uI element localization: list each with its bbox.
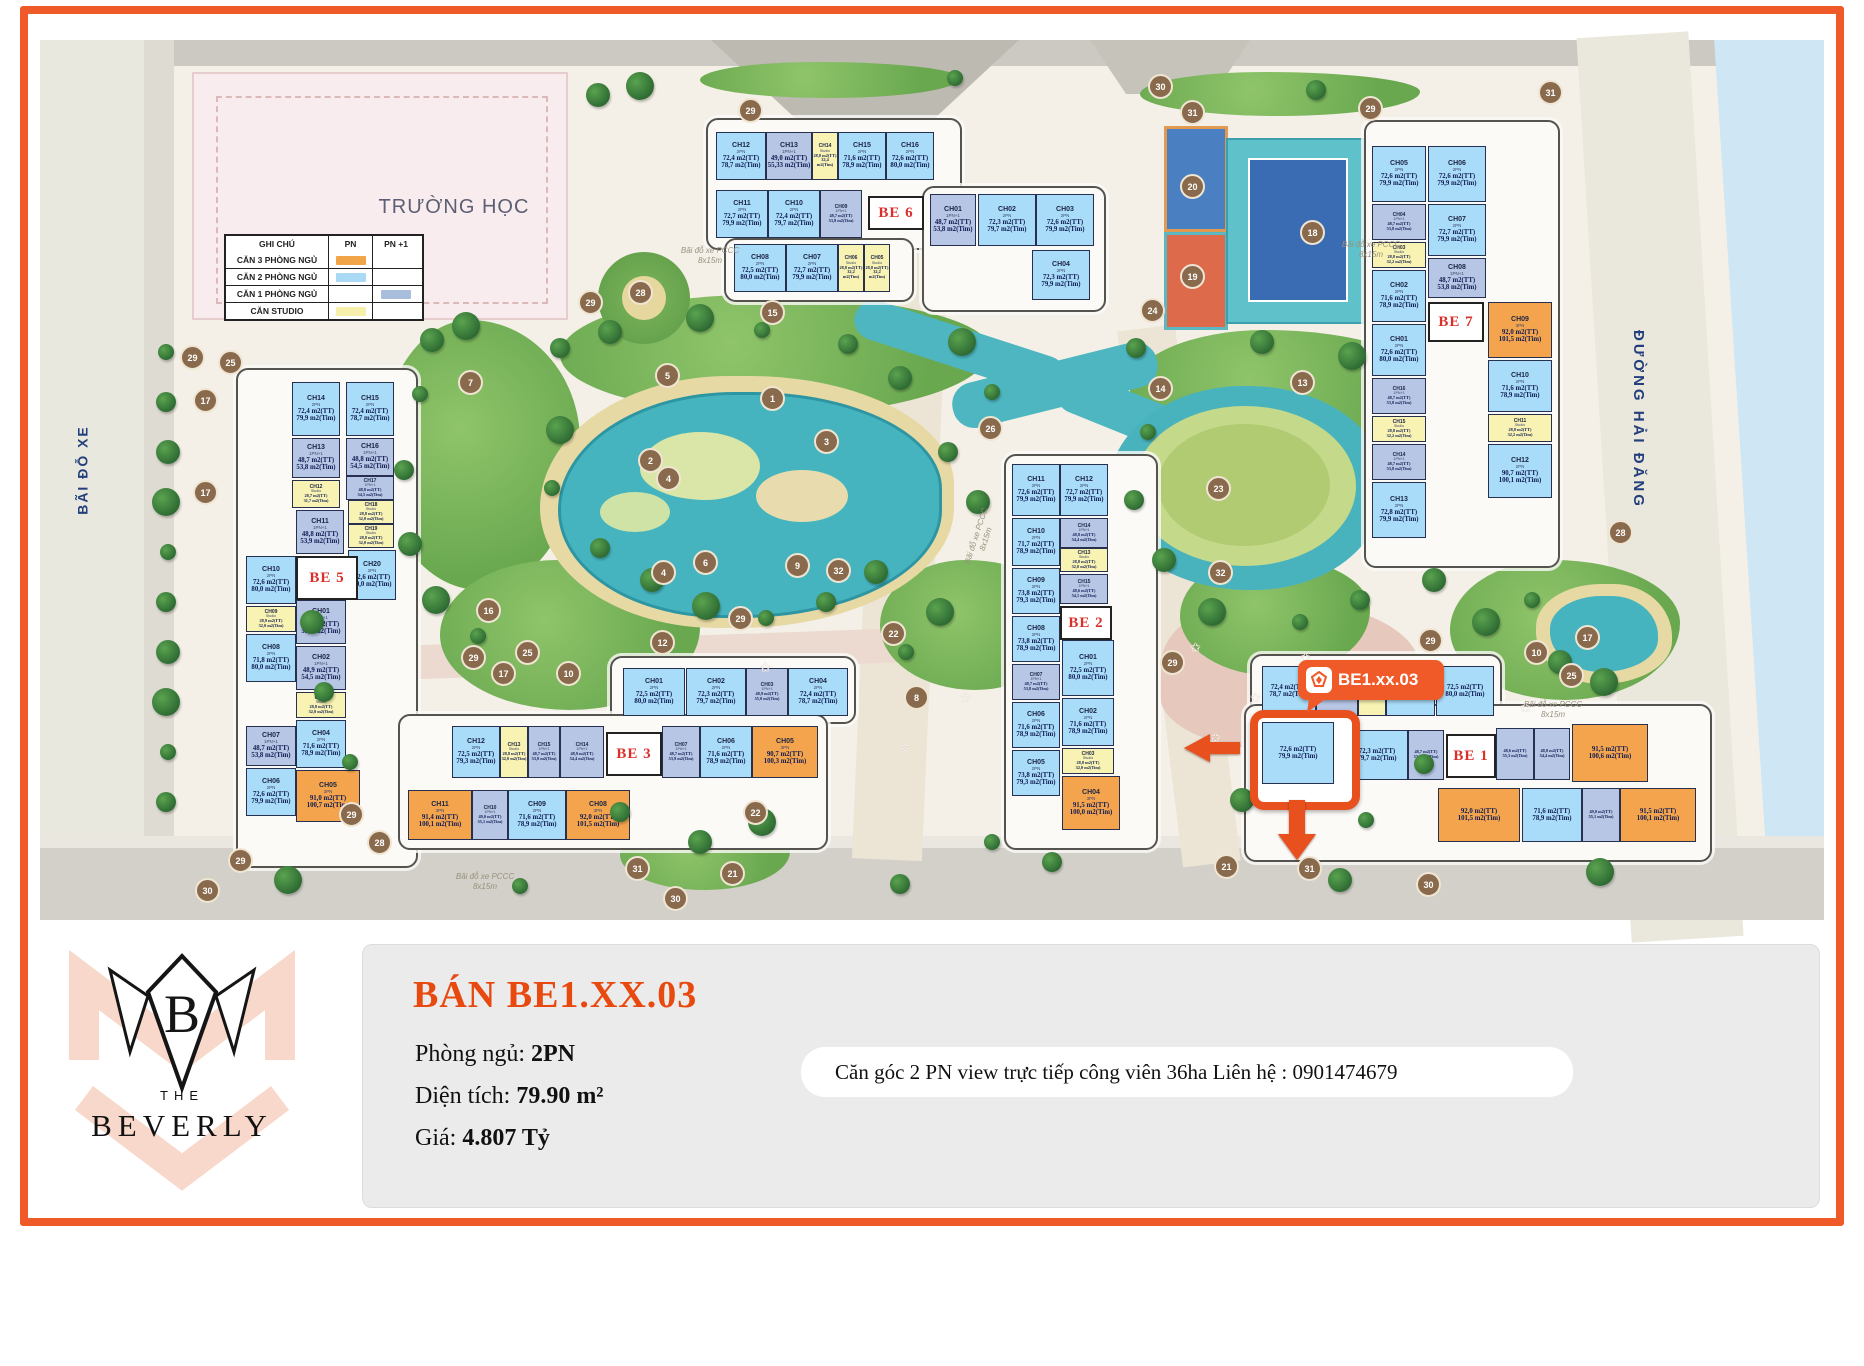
tree-icon xyxy=(160,744,176,760)
unit-cell[interactable]: 48,6 m2(TT)55,3 m2(Tim) xyxy=(1496,728,1534,780)
star-decoration-icon: ✩ xyxy=(760,660,771,676)
tree-icon xyxy=(1328,868,1352,892)
unit-cell[interactable]: CH091PN+148,7 m2(TT)53,8 m2(Tim) xyxy=(820,190,862,238)
tree-icon xyxy=(156,640,180,664)
unit-cell[interactable]: CH022PN71,6 m2(TT)78,9 m2(Tim) xyxy=(1062,698,1114,746)
unit-cell[interactable]: CH012PN72,5 m2(TT)80,0 m2(Tim) xyxy=(1062,640,1114,696)
tree-icon xyxy=(1358,812,1374,828)
unit-area-tim: 32,0 m2(Tim) xyxy=(309,710,334,715)
brand-logo-art: B xyxy=(56,940,308,1218)
star-decoration-icon: ✩ xyxy=(900,740,911,756)
unit-cell[interactable]: CH081PN+148,7 m2(TT)53,8 m2(Tim) xyxy=(1428,258,1486,298)
map-badge: 31 xyxy=(1180,100,1205,125)
map-badge: 10 xyxy=(556,661,581,686)
tree-icon xyxy=(1422,568,1446,592)
unit-cell[interactable]: CH152PN71,6 m2(TT)78,9 m2(Tim) xyxy=(838,132,886,180)
unit-cell[interactable]: 71,6 m2(TT)78,9 m2(Tim) xyxy=(1522,788,1582,842)
unit-cell[interactable]: CH03Studio28,8 m2(TT)32,0 m2(Tim) xyxy=(1062,748,1114,774)
unit-cell[interactable]: CH151PN+148,6 m2(TT)54,1 m2(Tim) xyxy=(1060,574,1108,604)
unit-area-tim: 31,7 m2(Tim) xyxy=(304,499,329,504)
unit-cell[interactable]: CH122PN90,7 m2(TT)100,1 m2(Tim) xyxy=(1488,444,1552,498)
unit-area-tim: 54,4 m2(Tim) xyxy=(570,757,595,762)
unit-cell[interactable]: CH022PN72,3 m2(TT)79,7 m2(Tim) xyxy=(978,194,1036,246)
unit-area-tim: 53,8 m2(Tim) xyxy=(532,757,557,762)
unit-area-tim: 54,4 m2(Tim) xyxy=(1540,754,1565,759)
map-badge: 22 xyxy=(881,621,906,646)
unit-cell[interactable]: CH142PN72,4 m2(TT)79,9 m2(Tim) xyxy=(292,382,340,436)
map-badge: 24 xyxy=(1140,298,1165,323)
unit-cell[interactable]: CH132PN72,8 m2(TT)79,9 m2(Tim) xyxy=(1372,482,1426,538)
tree-icon xyxy=(890,874,910,894)
unit-area-tt: 48,7 m2(TT) xyxy=(253,745,289,752)
tennis-court-inner xyxy=(1248,158,1348,302)
unit-area-tim: 55,0 m2(Tim) xyxy=(755,697,780,702)
unit-cell[interactable]: CH071PN+148,7 m2(TT)53,8 m2(Tim) xyxy=(246,726,296,766)
tree-icon xyxy=(156,440,180,464)
unit-cell[interactable]: CH043PN91,5 m2(TT)100,0 m2(Tim) xyxy=(1062,776,1120,830)
unit-cell[interactable]: CH042PN71,6 m2(TT)78,9 m2(Tim) xyxy=(296,720,346,768)
tree-icon xyxy=(626,72,654,100)
map-legend: GHI CHÚ PN PN +1 CĂN 3 PHÒNG NGỦCĂN 2 PH… xyxy=(224,234,424,321)
tree-icon xyxy=(948,328,976,356)
map-badge: 14 xyxy=(1148,376,1173,401)
tree-icon xyxy=(156,792,176,812)
unit-area-tim: 53,8 m2(Tim) xyxy=(933,226,972,233)
unit-cell[interactable]: CH102PN71,6 m2(TT)78,9 m2(Tim) xyxy=(1488,360,1552,412)
building-label-be1[interactable]: BE 1 xyxy=(1446,734,1496,778)
unit-area-tt: 49,0 m2(TT) xyxy=(771,155,807,162)
map-badge: 30 xyxy=(1416,872,1441,897)
unit-cell[interactable]: CH141PN+148,8 m2(TT)54,4 m2(Tim) xyxy=(1060,518,1108,548)
great-lawn-inner xyxy=(1158,424,1330,546)
legend-header-pn1: PN +1 xyxy=(372,236,419,252)
unit-cell[interactable]: CH071PN+148,7 m2(TT)53,9 m2(Tim) xyxy=(662,726,700,778)
legend-row: CĂN 1 PHÒNG NGỦ xyxy=(226,285,422,302)
map-badge: 17 xyxy=(193,388,218,413)
unit-area-tt: 72,7 m2(TT) xyxy=(794,267,830,274)
unit-cell[interactable]: CH092PN73,8 m2(TT)79,3 m2(Tim) xyxy=(1012,568,1060,614)
unit-cell[interactable]: CH05Studio28,8 m2(TT)32,2 m2(Tim) xyxy=(864,244,890,292)
unit-area-tim: 53,8 m2(Tim) xyxy=(296,464,335,471)
unit-cell[interactable]: 72,6 m2(TT)79,9 m2(Tim) xyxy=(1262,722,1334,784)
unit-area-tim: 78,7 m2(Tim) xyxy=(350,415,389,422)
unit-cell[interactable]: CH082PN71,8 m2(TT)80,0 m2(Tim) xyxy=(246,634,296,682)
unit-area-tt: 71,6 m2(TT) xyxy=(1502,385,1538,392)
tree-icon xyxy=(586,83,610,107)
unit-cell[interactable]: 48,8 m2(TT)54,4 m2(Tim) xyxy=(1534,728,1570,780)
legend-swatch-pn xyxy=(328,269,372,285)
unit-area-tt: 91,4 m2(TT) xyxy=(422,814,458,821)
star-decoration-icon: ✩ xyxy=(1190,640,1201,656)
unit-cell[interactable]: CH122PN72,7 m2(TT)79,9 m2(Tim) xyxy=(1060,464,1108,516)
map-badge: 19 xyxy=(1180,264,1205,289)
building-label-be3[interactable]: BE 3 xyxy=(606,732,662,776)
unit-area-tim: 53,8 m2(Tim) xyxy=(1387,467,1412,472)
unit-cell[interactable]: CH072PN72,7 m2(TT)79,9 m2(Tim) xyxy=(1428,204,1486,256)
unit-area-tim: 79,3 m2(Tim) xyxy=(456,758,495,765)
unit-area-tim: 54,5 m2(Tim) xyxy=(350,463,389,470)
map-badge: 30 xyxy=(1148,74,1173,99)
callout-label: BE1.xx.03 xyxy=(1338,670,1418,690)
tree-icon xyxy=(1306,80,1326,100)
pccc-line2: 8x15m xyxy=(1498,710,1608,720)
unit-cell[interactable]: CH111PN+148,8 m2(TT)53,9 m2(Tim) xyxy=(296,510,344,554)
tree-icon xyxy=(342,754,358,770)
unit-cell[interactable]: CH122PN72,4 m2(TT)78,7 m2(Tim) xyxy=(716,132,766,180)
unit-area-tt: 48,7 m2(TT) xyxy=(298,457,334,464)
tree-icon xyxy=(546,416,574,444)
unit-area-tim: 78,7 m2(Tim) xyxy=(798,698,837,705)
map-badge: 29 xyxy=(1418,628,1443,653)
map-badge: 29 xyxy=(1358,96,1383,121)
unit-area-tt: 72,8 m2(TT) xyxy=(1381,509,1417,516)
unit-cell[interactable]: CH152PN72,4 m2(TT)78,7 m2(Tim) xyxy=(346,382,394,436)
listing-field: Giá:4.807 Tỷ xyxy=(415,1125,550,1152)
tree-icon xyxy=(1124,490,1144,510)
unit-area-tim: 53,8 m2(Tim) xyxy=(1387,227,1412,232)
unit-cell[interactable]: CH141PN+148,7 m2(TT)53,8 m2(Tim) xyxy=(1372,444,1426,480)
unit-cell[interactable]: 92,0 m2(TT)101,5 m2(Tim) xyxy=(1438,788,1520,842)
building-label-be7[interactable]: BE 7 xyxy=(1428,302,1484,342)
unit-area-tt: 71,6 m2(TT) xyxy=(303,743,339,750)
unit-area-tt: 72,7 m2(TT) xyxy=(724,213,760,220)
unit-area-tim: 79,9 m2(Tim) xyxy=(1379,180,1418,187)
unit-cell[interactable]: CH161PN+148,7 m2(TT)53,8 m2(Tim) xyxy=(1372,378,1426,414)
tree-icon xyxy=(1586,858,1614,886)
unit-area-tt: 71,6 m2(TT) xyxy=(1070,721,1106,728)
unit-area-tim: 100,1 m2(Tim) xyxy=(419,821,462,828)
unit-cell[interactable]: CH072PN72,7 m2(TT)79,9 m2(Tim) xyxy=(786,244,838,292)
unit-area-tt: 72,3 m2(TT) xyxy=(1043,274,1079,281)
unit-area-tt: 91,5 m2(TT) xyxy=(1592,746,1628,753)
unit-area-tim: 79,9 m2(Tim) xyxy=(1379,516,1418,523)
unit-cell[interactable]: CH102PN72,4 m2(TT)79,7 m2(Tim) xyxy=(768,190,820,238)
unit-area-tim: 55,1 m2(Tim) xyxy=(1589,815,1614,820)
unit-cell[interactable]: CH071PN+148,7 m2(TT)53,8 m2(Tim) xyxy=(1012,664,1060,700)
unit-area-tim: 79,7 m2(Tim) xyxy=(696,698,735,705)
legend-swatch-pn xyxy=(328,303,372,319)
legend-row: CĂN 3 PHÒNG NGỦ xyxy=(226,252,422,268)
unit-area-tt: 91,5 m2(TT) xyxy=(1073,802,1109,809)
unit-area-tim: 79,9 m2(Tim) xyxy=(1437,180,1476,187)
listing-field: Diện tích:79.90 m² xyxy=(415,1083,604,1110)
unit-area-tim: 78,9 m2(Tim) xyxy=(1379,302,1418,309)
map-badge: 25 xyxy=(515,640,540,665)
unit-cell[interactable]: CH09Studio28,9 m2(TT)32,0 m2(Tim) xyxy=(246,606,296,632)
legend-header: GHI CHÚ PN PN +1 xyxy=(226,236,422,252)
unit-cell[interactable]: CH062PN71,6 m2(TT)78,9 m2(Tim) xyxy=(1012,702,1060,748)
unit-area-tim: 80,0 m2(Tim) xyxy=(251,586,290,593)
unit-area-tt: 72,7 m2(TT) xyxy=(1439,229,1475,236)
unit-area-tim: 80,0 m2(Tim) xyxy=(1068,674,1107,681)
unit-area-tt: 92,0 m2(TT) xyxy=(1502,329,1538,336)
star-decoration-icon: ✩ xyxy=(960,690,971,706)
map-badge: 30 xyxy=(663,886,688,911)
tree-icon xyxy=(758,610,774,626)
unit-area-tt: 72,5 m2(TT) xyxy=(1447,684,1483,691)
map-badge: 23 xyxy=(1206,476,1231,501)
unit-area-tim: 79,9 m2(Tim) xyxy=(1278,753,1317,760)
legend-swatch-pn1 xyxy=(372,303,419,319)
unit-area-tt: 72,4 m2(TT) xyxy=(352,408,388,415)
unit-cell[interactable]: CH062PN71,6 m2(TT)78,9 m2(Tim) xyxy=(700,726,752,778)
unit-area-tim: 79,9 m2(Tim) xyxy=(1041,281,1080,288)
unit-area-tim: 80,0 m2(Tim) xyxy=(251,664,290,671)
unit-cell[interactable]: CH053PN90,7 m2(TT)100,3 m2(Tim) xyxy=(752,726,818,778)
map-badge: 22 xyxy=(743,800,768,825)
unit-area-tim: 32,2 m2(Tim) xyxy=(1508,433,1533,438)
unit-area-tim: 79,7 m2(Tim) xyxy=(987,226,1026,233)
unit-cell[interactable]: CH062PN72,6 m2(TT)79,9 m2(Tim) xyxy=(1428,146,1486,202)
unit-cell[interactable]: CH131PN+149,0 m2(TT)55,33 m2(Tim) xyxy=(766,132,812,180)
unit-area-tim: 53,8 m2(Tim) xyxy=(251,752,290,759)
tree-icon xyxy=(452,312,480,340)
unit-area-tim: 79,9 m2(Tim) xyxy=(792,274,831,281)
unit-area-tt: 73,8 m2(TT) xyxy=(1018,590,1054,597)
unit-area-tt: 72,5 m2(TT) xyxy=(636,691,672,698)
side-road xyxy=(144,40,174,920)
tree-icon xyxy=(314,682,334,702)
map-badge: 18 xyxy=(1300,220,1325,245)
unit-cell[interactable]: CH113PN91,4 m2(TT)100,1 m2(Tim) xyxy=(408,790,472,840)
tree-icon xyxy=(590,538,610,558)
unit-area-tim: 101,5 m2(Tim) xyxy=(1458,815,1501,822)
unit-area-tim: 79,9 m2(Tim) xyxy=(1437,236,1476,243)
unit-cell[interactable]: CH042PN72,4 m2(TT)78,7 m2(Tim) xyxy=(788,668,848,716)
map-badge: 17 xyxy=(491,661,516,686)
unit-area-tim: 53,8 m2(Tim) xyxy=(1387,401,1412,406)
tree-icon xyxy=(947,70,963,86)
tree-icon xyxy=(864,560,888,584)
unit-area-tim: 78,9 m2(Tim) xyxy=(1500,392,1539,399)
unit-cell[interactable]: CH012PN72,6 m2(TT)80,0 m2(Tim) xyxy=(1372,324,1426,376)
map-badge: 29 xyxy=(339,802,364,827)
unit-cell[interactable]: CH101PN+149,0 m2(TT)55,1 m2(Tim) xyxy=(472,790,508,840)
unit-cell[interactable]: CH042PN72,3 m2(TT)79,9 m2(Tim) xyxy=(1032,250,1090,300)
map-badge: 12 xyxy=(650,630,675,655)
unit-cell[interactable]: CH011PN+148,7 m2(TT)53,8 m2(Tim) xyxy=(930,194,976,246)
unit-cell[interactable]: CH093PN92,0 m2(TT)101,5 m2(Tim) xyxy=(1488,302,1552,358)
unit-cell[interactable]: CH14Studio28,8 m2(TT)32,4 m2(Tim) xyxy=(812,132,838,180)
unit-cell[interactable]: CH131PN+148,7 m2(TT)53,8 m2(Tim) xyxy=(292,438,340,478)
unit-cell[interactable]: CH06Studio28,8 m2(TT)32,2 m2(Tim) xyxy=(838,244,864,292)
map-badge: 15 xyxy=(760,300,785,325)
unit-area-tt: 92,0 m2(TT) xyxy=(1461,808,1497,815)
unit-area-tim: 55,3 m2(Tim) xyxy=(1503,754,1528,759)
legend-row-label: CĂN STUDIO xyxy=(226,303,328,319)
map-badge: 29 xyxy=(728,606,753,631)
unit-area-tim: 79,9 m2(Tim) xyxy=(296,415,335,422)
unit-area-tim: 100,3 m2(Tim) xyxy=(764,758,807,765)
unit-area-tim: 54,4 m2(Tim) xyxy=(1072,538,1097,543)
unit-area-tim: 78,9 m2(Tim) xyxy=(1016,731,1055,738)
unit-area-tt: 71,6 m2(TT) xyxy=(519,814,555,821)
unit-area-tim: 78,9 m2(Tim) xyxy=(1532,815,1571,822)
tree-icon xyxy=(1292,614,1308,630)
tree-icon xyxy=(692,592,720,620)
tree-icon xyxy=(938,442,958,462)
unit-area-tt: 72,4 m2(TT) xyxy=(723,155,759,162)
building-label-be5[interactable]: BE 5 xyxy=(296,556,358,600)
map-badge: 13 xyxy=(1290,370,1315,395)
unit-cell[interactable]: CH141PN+148,9 m2(TT)54,4 m2(Tim) xyxy=(560,726,604,778)
unit-cell[interactable]: CH12Studio28,7 m2(TT)31,7 m2(Tim) xyxy=(292,480,340,508)
map-badge: 25 xyxy=(218,350,243,375)
tree-icon xyxy=(1250,330,1274,354)
listing-field: Phòng ngủ:2PN xyxy=(415,1041,575,1068)
unit-cell[interactable]: 49,0 m2(TT)55,1 m2(Tim) xyxy=(1582,788,1620,842)
unit-cell[interactable]: 91,5 m2(TT)100,1 m2(Tim) xyxy=(1620,788,1696,842)
unit-area-tim: 53,9 m2(Tim) xyxy=(300,538,339,545)
map-badge: 26 xyxy=(978,416,1003,441)
unit-area-tt: 72,5 m2(TT) xyxy=(1070,667,1106,674)
unit-cell[interactable]: CH082PN73,8 m2(TT)78,9 m2(Tim) xyxy=(1012,616,1060,662)
unit-cell[interactable]: CH022PN71,6 m2(TT)78,9 m2(Tim) xyxy=(1372,270,1426,322)
tree-icon xyxy=(1140,424,1156,440)
legend-swatch-pn1 xyxy=(372,286,419,302)
unit-cell[interactable]: CH102PN71,7 m2(TT)78,9 m2(Tim) xyxy=(1012,518,1060,566)
tree-icon xyxy=(156,592,176,612)
unit-cell[interactable]: CH032PN72,6 m2(TT)79,9 m2(Tim) xyxy=(1036,194,1094,246)
brand-the: THE xyxy=(56,1088,308,1103)
unit-cell[interactable]: CH11Studio28,8 m2(TT)32,2 m2(Tim) xyxy=(1488,414,1552,442)
tree-icon xyxy=(420,328,444,352)
tree-icon xyxy=(926,598,954,626)
legend-swatch xyxy=(381,290,411,299)
map-badge: 31 xyxy=(1538,80,1563,105)
unit-cell[interactable]: 72,5 m2(TT)80,0 m2(Tim) xyxy=(1436,666,1494,716)
map-badge: 4 xyxy=(656,466,681,491)
unit-cell[interactable]: CH052PN73,8 m2(TT)79,3 m2(Tim) xyxy=(1012,750,1060,796)
unit-cell[interactable]: CH092PN71,6 m2(TT)78,9 m2(Tim) xyxy=(508,790,566,840)
unit-area-tt: 91,5 m2(TT) xyxy=(1640,808,1676,815)
unit-cell[interactable]: CH161PN+148,8 m2(TT)54,5 m2(Tim) xyxy=(346,438,394,476)
legend-swatch xyxy=(336,307,366,316)
tree-icon xyxy=(838,334,858,354)
building-label-be2[interactable]: BE 2 xyxy=(1060,606,1112,640)
star-decoration-icon: ✩ xyxy=(1250,690,1261,706)
tree-icon xyxy=(158,344,174,360)
tree-icon xyxy=(1350,590,1370,610)
unit-cell[interactable]: CH13Studio28,8 m2(TT)32,0 m2(Tim) xyxy=(1060,548,1108,572)
legend-swatch xyxy=(336,273,366,282)
unit-area-tt: 72,6 m2(TT) xyxy=(1381,349,1417,356)
svg-text:B: B xyxy=(164,984,200,1044)
unit-cell[interactable]: CH15Studio28,8 m2(TT)32,2 m2(Tim) xyxy=(1372,416,1426,442)
tree-icon xyxy=(156,392,176,412)
unit-cell[interactable]: CH122PN72,5 m2(TT)79,3 m2(Tim) xyxy=(452,726,500,778)
pccc-line1: Bãi đỗ xe PCCC xyxy=(655,246,765,256)
tree-icon xyxy=(470,628,486,644)
tree-icon xyxy=(160,544,176,560)
unit-area-tim: 32,2 m2(Tim) xyxy=(1387,260,1412,265)
tree-icon xyxy=(152,488,180,516)
unit-cell[interactable]: CH13Studio28,8 m2(TT)32,0 m2(Tim) xyxy=(500,726,528,778)
unit-area-tt: 72,6 m2(TT) xyxy=(1018,489,1054,496)
unit-cell[interactable]: CH022PN72,3 m2(TT)79,7 m2(Tim) xyxy=(686,668,746,716)
unit-cell[interactable]: CH171PN+148,8 m2(TT)54,5 m2(Tim) xyxy=(346,476,394,500)
unit-area-tt: 72,6 m2(TT) xyxy=(892,155,928,162)
unit-area-tim: 78,9 m2(Tim) xyxy=(301,750,340,757)
unit-area-tim: 32,0 m2(Tim) xyxy=(359,517,384,522)
unit-area-tt: 72,4 m2(TT) xyxy=(298,408,334,415)
tree-icon xyxy=(898,644,914,660)
unit-area-tim: 78,9 m2(Tim) xyxy=(842,162,881,169)
unit-cell[interactable]: CH151PN+148,7 m2(TT)53,8 m2(Tim) xyxy=(528,726,560,778)
unit-area-tt: 72,6 m2(TT) xyxy=(1381,173,1417,180)
unit-area-tt: 73,8 m2(TT) xyxy=(1018,638,1054,645)
school-zone: TRƯỜNG HỌC GHI CHÚ PN PN +1 CĂN 3 PHÒNG … xyxy=(192,72,568,320)
unit-callout[interactable]: BE1.xx.03 xyxy=(1298,660,1444,700)
unit-area-tim: 55,33 m2(Tim) xyxy=(768,162,811,169)
map-badge: 31 xyxy=(625,856,650,881)
unit-cell[interactable]: CH19Studio28,8 m2(TT)32,0 m2(Tim) xyxy=(348,524,394,548)
unit-area-tt: 72,5 m2(TT) xyxy=(742,267,778,274)
unit-cell[interactable]: CH162PN72,6 m2(TT)80,0 m2(Tim) xyxy=(886,132,934,180)
unit-area-tim: 80,0 m2(Tim) xyxy=(634,698,673,705)
unit-cell[interactable]: CH112PN72,6 m2(TT)79,9 m2(Tim) xyxy=(1012,464,1060,516)
unit-area-tt: 91,0 m2(TT) xyxy=(310,795,346,802)
unit-cell[interactable]: CH18Studio28,8 m2(TT)32,0 m2(Tim) xyxy=(348,500,394,524)
legend-row-label: CĂN 3 PHÒNG NGỦ xyxy=(226,252,328,268)
pccc-parking-label: Bãi đỗ xe PCCC8x15m xyxy=(655,246,765,265)
tree-icon xyxy=(610,802,630,822)
tree-icon xyxy=(544,480,560,496)
map-badge: 17 xyxy=(1575,625,1600,650)
unit-area-tt: 71,6 m2(TT) xyxy=(844,155,880,162)
map-badge: 10 xyxy=(1524,640,1549,665)
tree-icon xyxy=(888,366,912,390)
map-badge: 28 xyxy=(628,280,653,305)
unit-area-tt: 90,7 m2(TT) xyxy=(1502,470,1538,477)
building-label-be6[interactable]: BE 6 xyxy=(868,196,924,230)
unit-area-tim: 32,0 m2(Tim) xyxy=(259,624,284,629)
arrow-down-icon xyxy=(1278,800,1316,862)
map-badge: 32 xyxy=(1208,560,1233,585)
unit-area-tim: 79,7 m2(Tim) xyxy=(774,220,813,227)
unit-cell[interactable]: CH102PN72,6 m2(TT)80,0 m2(Tim) xyxy=(246,556,296,604)
callout-tail xyxy=(1307,697,1325,715)
map-badge: 25 xyxy=(1559,663,1584,688)
tree-icon xyxy=(1472,608,1500,636)
unit-cell[interactable]: 91,5 m2(TT)100,6 m2(Tim) xyxy=(1572,724,1648,782)
unit-area-tim: 79,9 m2(Tim) xyxy=(1064,496,1103,503)
unit-area-tim: 100,1 m2(Tim) xyxy=(1637,815,1680,822)
map-badge: 1 xyxy=(760,386,785,411)
tree-icon xyxy=(422,586,450,614)
unit-area-tt: 72,6 m2(TT) xyxy=(253,791,289,798)
unit-cell[interactable]: CH112PN72,7 m2(TT)79,9 m2(Tim) xyxy=(716,190,768,238)
unit-area-tim: 80,0 m2(Tim) xyxy=(352,581,391,588)
legend-header-pn: PN xyxy=(328,236,372,252)
map-badge: 21 xyxy=(720,861,745,886)
unit-cell[interactable]: CH062PN72,6 m2(TT)79,9 m2(Tim) xyxy=(246,768,296,816)
arrow-left-icon xyxy=(1184,734,1242,762)
listing-panel: BÁN BE1.XX.03 Phòng ngủ:2PNDiện tích:79.… xyxy=(362,944,1820,1208)
map-badge: 29 xyxy=(738,98,763,123)
unit-area-tim: 80,0 m2(Tim) xyxy=(890,162,929,169)
unit-cell[interactable]: CH041PN+148,7 m2(TT)53,8 m2(Tim) xyxy=(1372,204,1426,240)
unit-cell[interactable]: CH012PN72,5 m2(TT)80,0 m2(Tim) xyxy=(623,668,685,716)
tree-icon xyxy=(1198,598,1226,626)
unit-area-tt: 48,7 m2(TT) xyxy=(935,219,971,226)
unit-area-tim: 80,0 m2(Tim) xyxy=(740,274,779,281)
tree-icon xyxy=(1590,668,1618,696)
unit-cell[interactable]: CH052PN72,6 m2(TT)79,9 m2(Tim) xyxy=(1372,146,1426,202)
legend-swatch xyxy=(336,256,366,265)
unit-area-tim: 53,9 m2(Tim) xyxy=(669,757,694,762)
site-map: ✩✩✩✩✩✩✩✩✩✩ TRƯỜNG HỌC GHI CHÚ PN PN +1 C… xyxy=(0,0,1864,940)
